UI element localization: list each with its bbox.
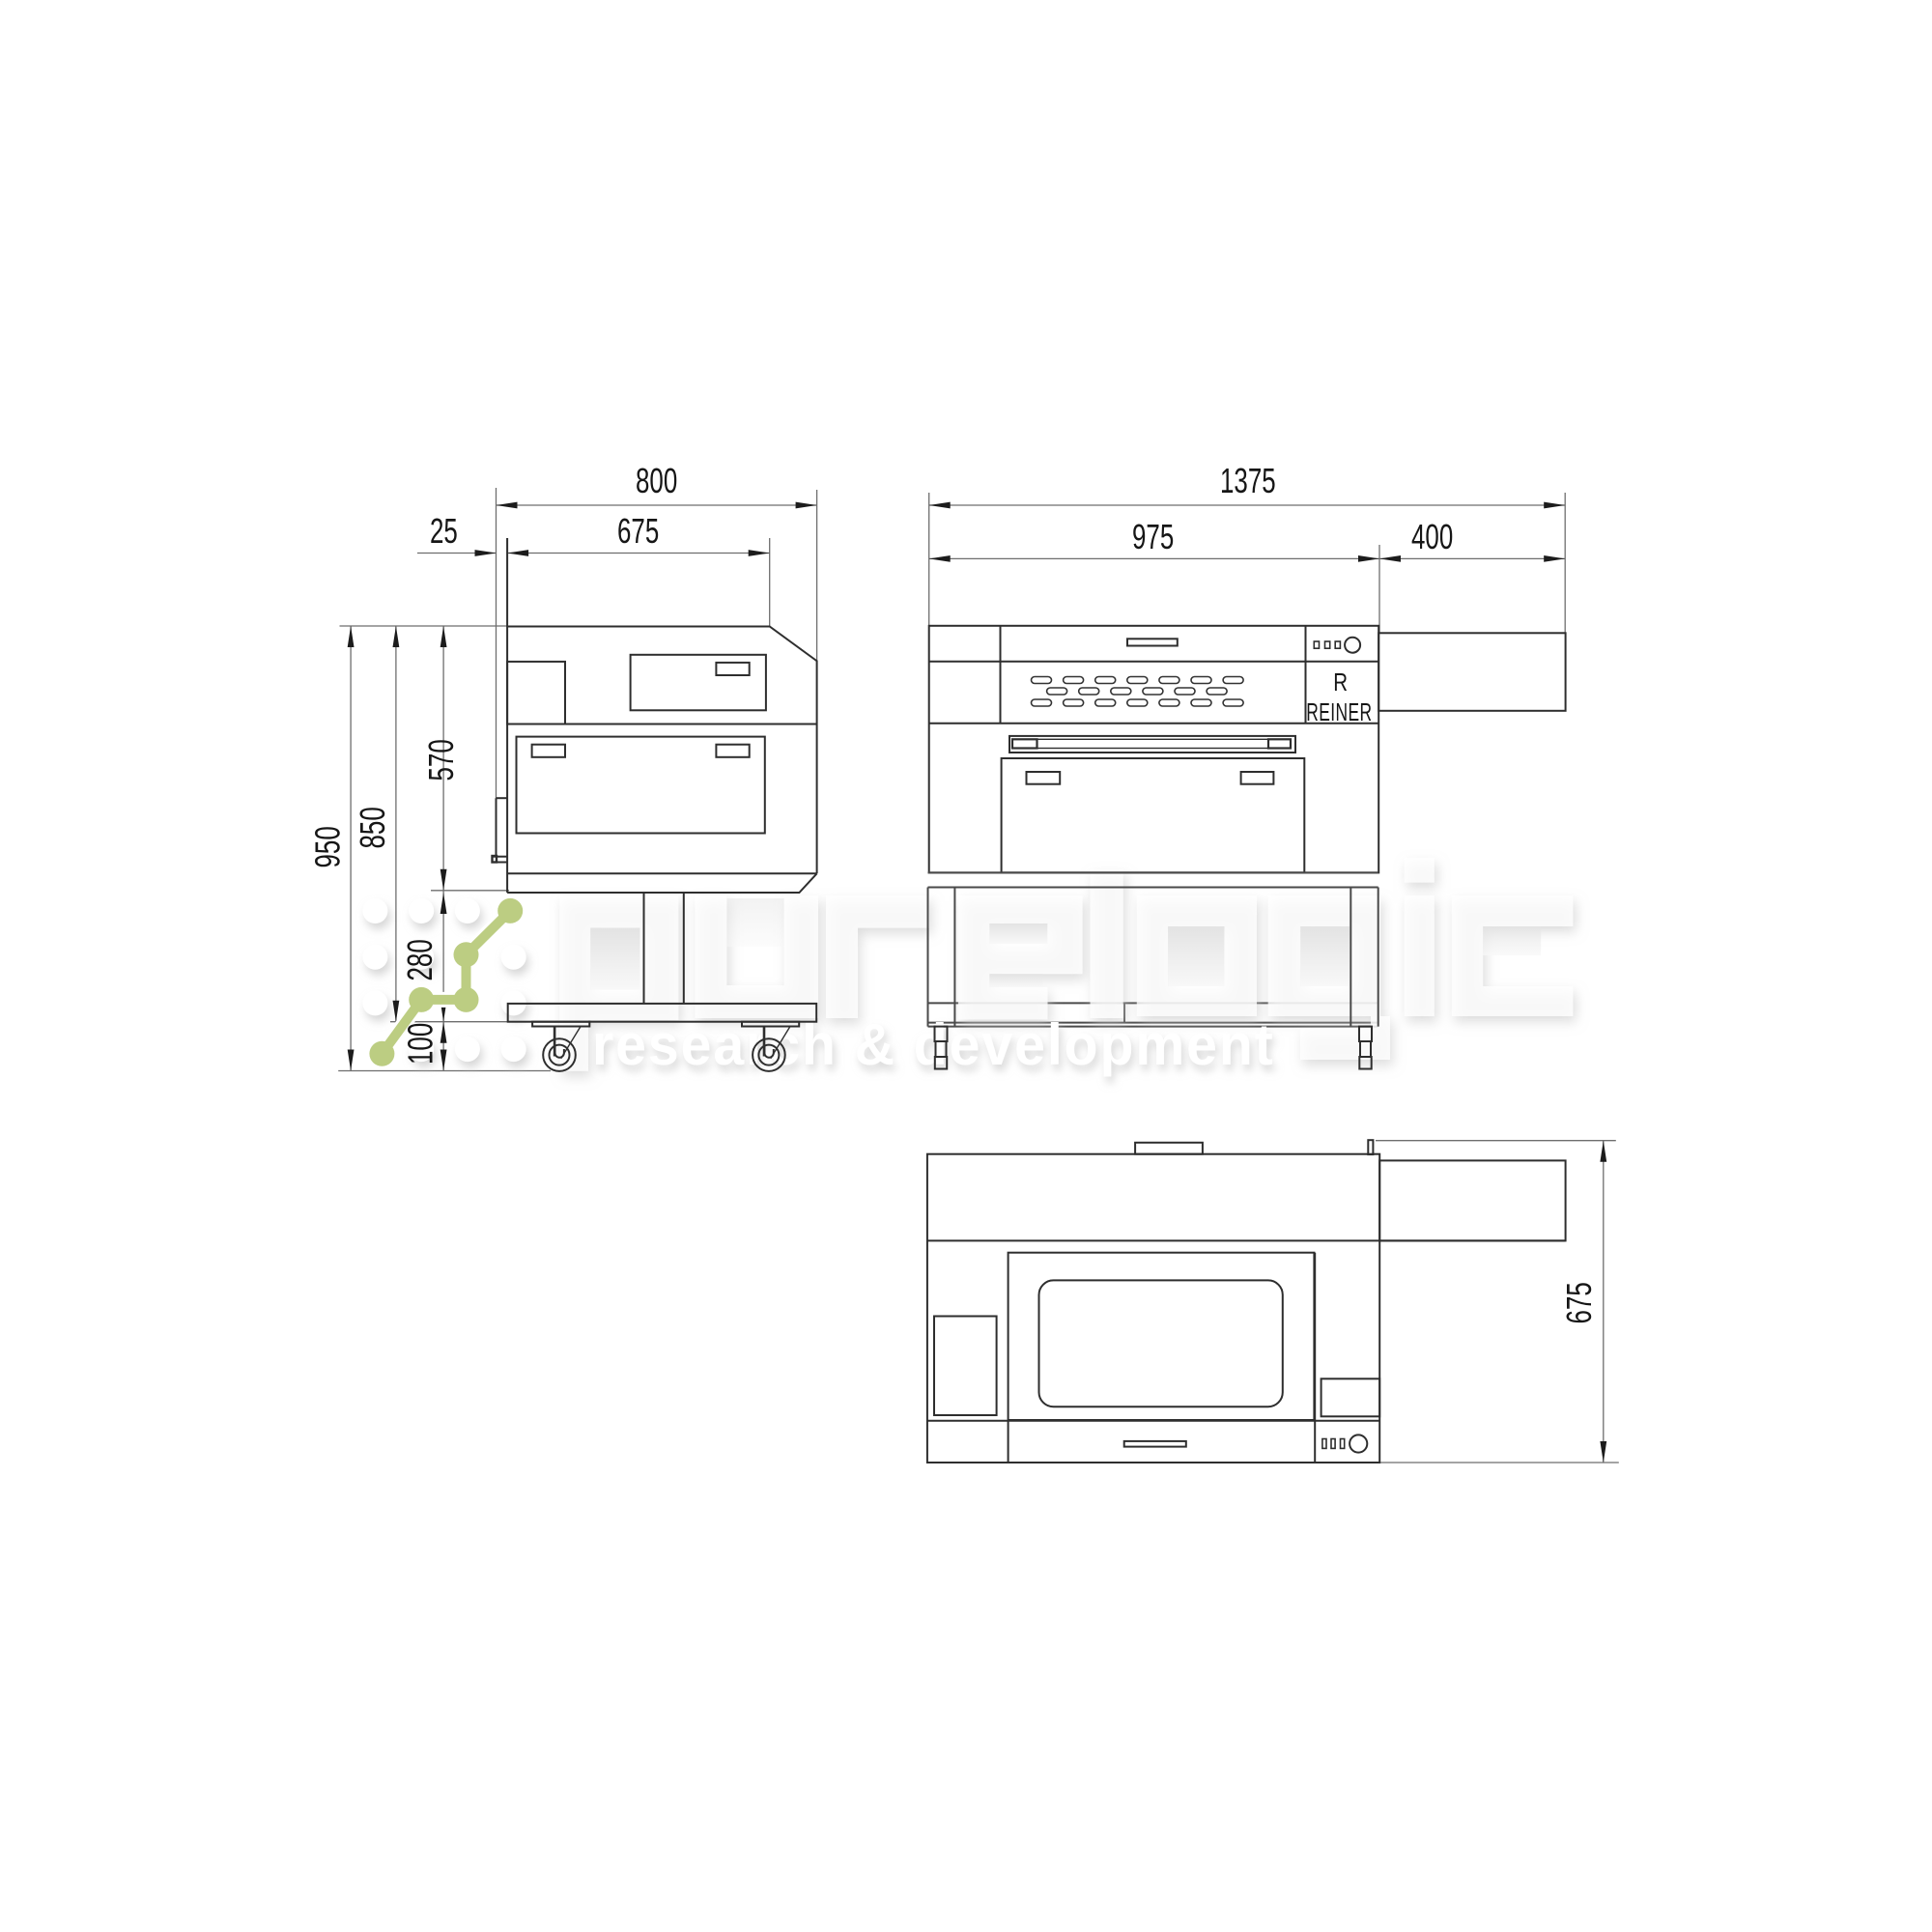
svg-text:675: 675 [617, 512, 659, 551]
svg-text:280: 280 [401, 939, 440, 980]
svg-text:850: 850 [354, 807, 392, 848]
svg-text:research & development: research & development [592, 1013, 1275, 1078]
svg-text:950: 950 [308, 826, 347, 867]
svg-text:975: 975 [1132, 518, 1174, 556]
svg-text:25: 25 [430, 512, 458, 551]
svg-text:REINER: REINER [1306, 698, 1372, 726]
svg-text:800: 800 [636, 462, 677, 500]
svg-text:100: 100 [401, 1023, 440, 1065]
svg-text:675: 675 [1560, 1282, 1599, 1323]
svg-text:570: 570 [422, 739, 461, 781]
svg-text:400: 400 [1411, 518, 1453, 556]
svg-text:R: R [1333, 668, 1348, 696]
svg-text:1375: 1375 [1220, 462, 1276, 500]
